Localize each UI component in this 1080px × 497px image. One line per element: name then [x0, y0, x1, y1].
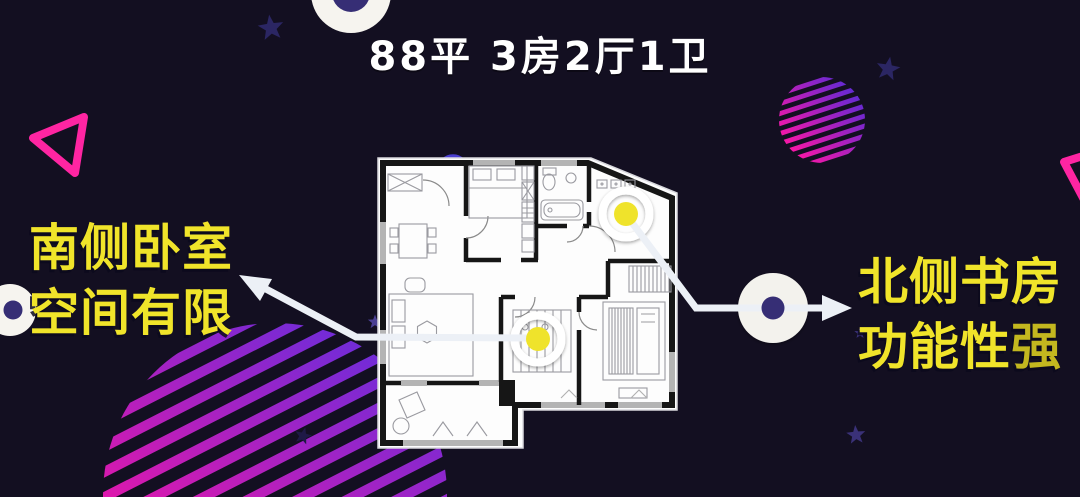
label-south-bedroom: 南侧卧室 空间有限 [26, 216, 236, 346]
bullseye-center-dot [762, 297, 785, 320]
label-north-study: 北侧书房 功能性强 [851, 250, 1069, 380]
stage: 88平 3房2厅1卫 南侧卧室 空间有限 北侧书房 功能性强 [0, 0, 1080, 497]
leader-arrow-right [630, 220, 852, 321]
label-north-study-line2: 功能性强 [851, 315, 1069, 380]
marker-south-bedroom [526, 327, 550, 351]
arrowhead-icon [239, 275, 272, 301]
marker-north-study [614, 202, 638, 226]
label-accent-char: 强 [1011, 318, 1062, 376]
label-south-bedroom-line2: 空间有限 [26, 281, 236, 346]
label-south-bedroom-line1: 南侧卧室 [26, 216, 236, 281]
leader-arrow-left [239, 275, 536, 338]
label-north-study-line1: 北侧书房 [851, 250, 1069, 315]
arrowhead-icon [822, 295, 852, 321]
page-title: 88平 3房2厅1卫 [0, 24, 1080, 82]
